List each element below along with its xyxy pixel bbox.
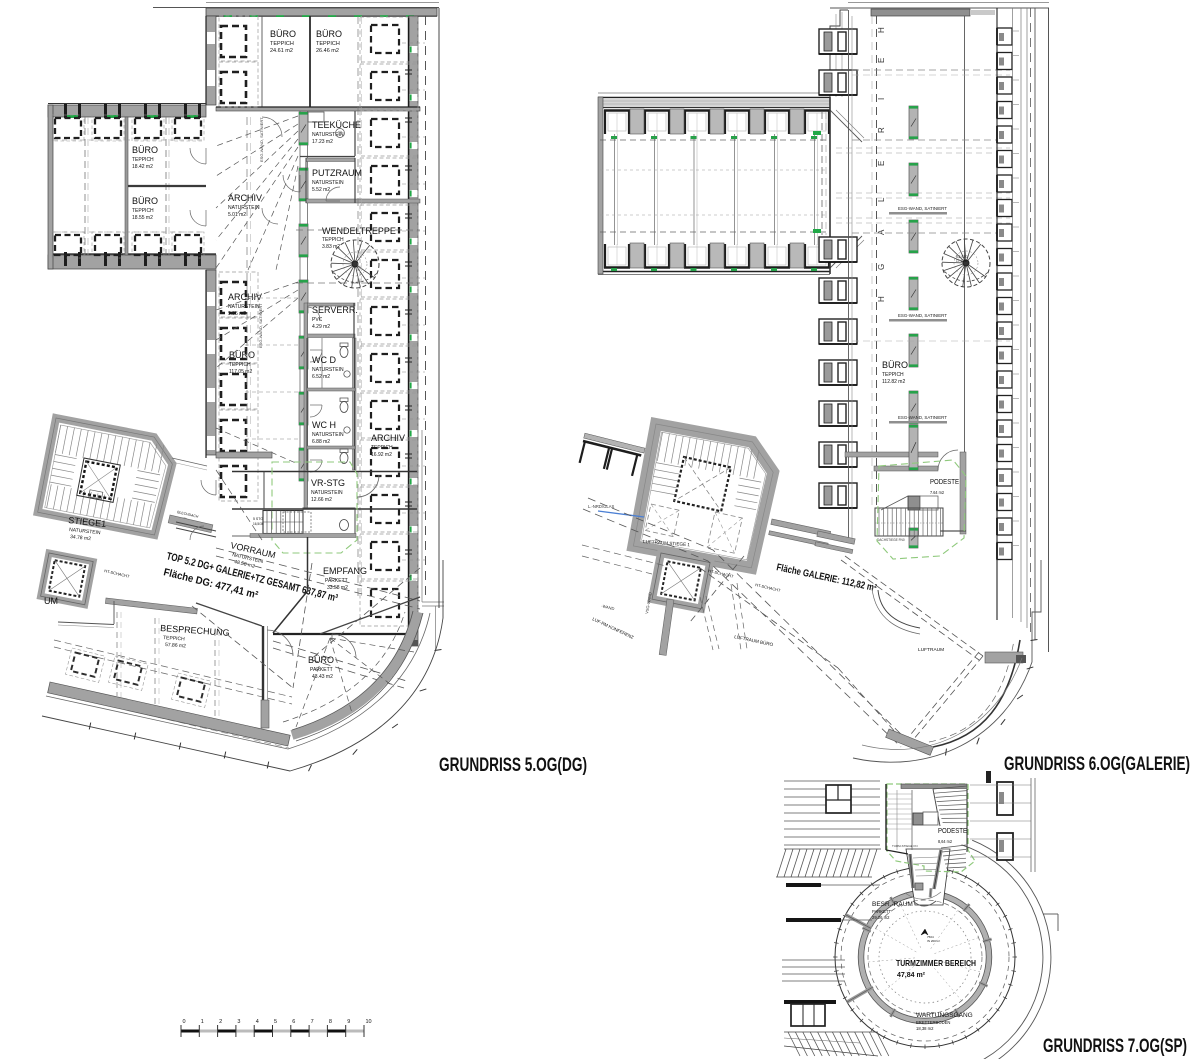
svg-text:18.42 m2: 18.42 m2 [132,164,153,170]
svg-text:H: H [877,27,886,33]
svg-text:BESR.-RAUM: BESR.-RAUM [872,901,913,908]
svg-text:18.55 m2: 18.55 m2 [132,215,153,221]
svg-text:BÜRO: BÜRO [882,360,908,370]
svg-text:PARKETT: PARKETT [310,667,333,673]
svg-text:I: I [877,98,886,100]
svg-text:8,64 m2: 8,64 m2 [938,839,953,844]
svg-text:4.29 m2: 4.29 m2 [312,324,330,330]
svg-text:E: E [877,58,886,63]
svg-text:NATURSTEIN: NATURSTEIN [311,490,343,496]
svg-text:NATURSTEIN: NATURSTEIN [312,432,344,438]
svg-text:IN 200 m²: IN 200 m² [927,939,940,943]
svg-text:BÜRO: BÜRO [308,655,334,665]
svg-text:ESG-WAND, SATINIERT: ESG-WAND, SATINIERT [898,415,947,420]
svg-text:1: 1 [201,1019,204,1025]
svg-text:TEPPICH: TEPPICH [270,41,294,47]
svg-text:ESG-WAND, SATINIERT: ESG-WAND, SATINIERT [898,206,947,211]
svg-text:H: H [877,296,886,302]
svg-text:5.52 m2: 5.52 m2 [312,187,330,193]
svg-text:EMPFANG: EMPFANG [323,566,367,576]
svg-text:5 STG: 5 STG [253,517,263,521]
svg-text:BÜRO: BÜRO [316,29,342,39]
svg-text:LUFTRAUM: LUFTRAUM [918,647,944,653]
svg-text:10: 10 [366,1019,372,1025]
svg-text:12.66 m2: 12.66 m2 [311,497,332,503]
svg-text:TURMZIMMER BEREICH: TURMZIMMER BEREICH [896,958,976,968]
svg-text:G: G [877,264,886,270]
svg-text:TEPPICH: TEPPICH [882,372,904,378]
svg-text:16.92 m2: 16.92 m2 [371,452,392,458]
svg-text:PARKETT: PARKETT [872,909,891,914]
svg-text:L.-NRD/GLAS: L.-NRD/GLAS [588,504,615,509]
svg-text:3: 3 [237,1019,240,1025]
svg-text:TEPPICH: TEPPICH [316,41,340,47]
svg-text:ARCHIV: ARCHIV [228,193,262,203]
svg-text:24.61 m2: 24.61 m2 [270,48,293,54]
svg-text:47,84 m²: 47,84 m² [897,972,926,979]
svg-text:GRUNDRISS 7.OG(SP): GRUNDRISS 7.OG(SP) [1043,1036,1187,1057]
svg-text:WC H: WC H [312,420,336,430]
svg-text:17.23 m2: 17.23 m2 [312,139,333,145]
svg-text:NATURSTEIN: NATURSTEIN [312,180,344,186]
svg-text:DACHSTIEGE FN0: DACHSTIEGE FN0 [877,538,905,542]
svg-text:17,1/26: 17,1/26 [956,259,967,263]
svg-text:TEPPICH: TEPPICH [132,157,154,163]
svg-text:5: 5 [274,1019,277,1025]
svg-text:ARCHIV: ARCHIV [371,433,405,443]
svg-text:ARCHIV: ARCHIV [228,292,262,302]
svg-text:PUTZRAUM: PUTZRAUM [312,168,362,178]
svg-text:NATURSTEIN: NATURSTEIN [312,367,344,373]
svg-text:112.82 m2: 112.82 m2 [882,379,905,385]
svg-text:ESG-WAND, SATINIERT: ESG-WAND, SATINIERT [259,117,264,162]
svg-text:PVC: PVC [312,317,323,323]
svg-text:6: 6 [292,1019,295,1025]
svg-text:A: A [877,229,886,235]
svg-text:TEPPICH: TEPPICH [322,237,344,243]
svg-text:117.05 m2: 117.05 m2 [229,369,252,375]
svg-text:4: 4 [256,1019,259,1025]
svg-text:TEPPICH: TEPPICH [229,362,251,368]
svg-text:16,5/30: 16,5/30 [253,522,264,526]
svg-text:NATURSTEIN: NATURSTEIN [228,304,260,310]
svg-text:UM: UM [44,596,58,606]
svg-text:WENDELTREPPE: WENDELTREPPE [322,226,396,236]
svg-text:2: 2 [219,1019,222,1025]
svg-text:6.52 m2: 6.52 m2 [312,374,330,380]
svg-text:WC D: WC D [312,355,336,365]
svg-text:0: 0 [183,1019,186,1025]
svg-text:ESG-WAND, SATINIERT: ESG-WAND, SATINIERT [898,313,947,318]
svg-text:BÜRO: BÜRO [229,350,255,360]
svg-text:VR-STG: VR-STG [311,478,345,488]
svg-text:9: 9 [347,1019,350,1025]
svg-text:TURM-STIEGE FN: TURM-STIEGE FN [892,844,918,848]
svg-text:TEPPICH: TEPPICH [132,208,154,214]
svg-text:7.64 m2: 7.64 m2 [930,490,944,495]
svg-text:TEPPICH: TEPPICH [371,445,393,451]
svg-text:GRUNDRISS 6.OG(GALERIE): GRUNDRISS 6.OG(GALERIE) [1004,754,1190,775]
svg-text:L: L [877,197,886,202]
svg-text:E: E [877,161,886,166]
svg-text:BÜRO: BÜRO [132,196,158,206]
svg-text:SERVERR.: SERVERR. [312,305,358,315]
svg-text:26.46 m2: 26.46 m2 [316,48,339,54]
svg-text:29,26 m2: 29,26 m2 [872,915,890,920]
svg-text:9.35 m2: 9.35 m2 [228,311,246,317]
svg-text:WARTUNGSGANG: WARTUNGSGANG [916,1012,973,1019]
svg-text:BÜRO: BÜRO [270,29,296,39]
svg-text:BRETTERBODEN: BRETTERBODEN [916,1020,950,1025]
svg-text:5.01 m2: 5.01 m2 [228,212,246,218]
svg-text:PODESTE: PODESTE [930,479,959,486]
svg-text:18,38 m2: 18,38 m2 [916,1026,934,1031]
svg-text:TEEKÜCHE: TEEKÜCHE [312,120,361,130]
svg-text:PODESTE: PODESTE [938,826,967,835]
svg-text:8: 8 [329,1019,332,1025]
svg-text:R: R [877,127,886,133]
svg-text:7: 7 [311,1019,314,1025]
svg-text:BÜRO: BÜRO [132,145,158,155]
svg-text:6.88 m2: 6.88 m2 [312,439,330,445]
svg-text:GRUNDRISS 5.OG(DG): GRUNDRISS 5.OG(DG) [439,755,587,776]
